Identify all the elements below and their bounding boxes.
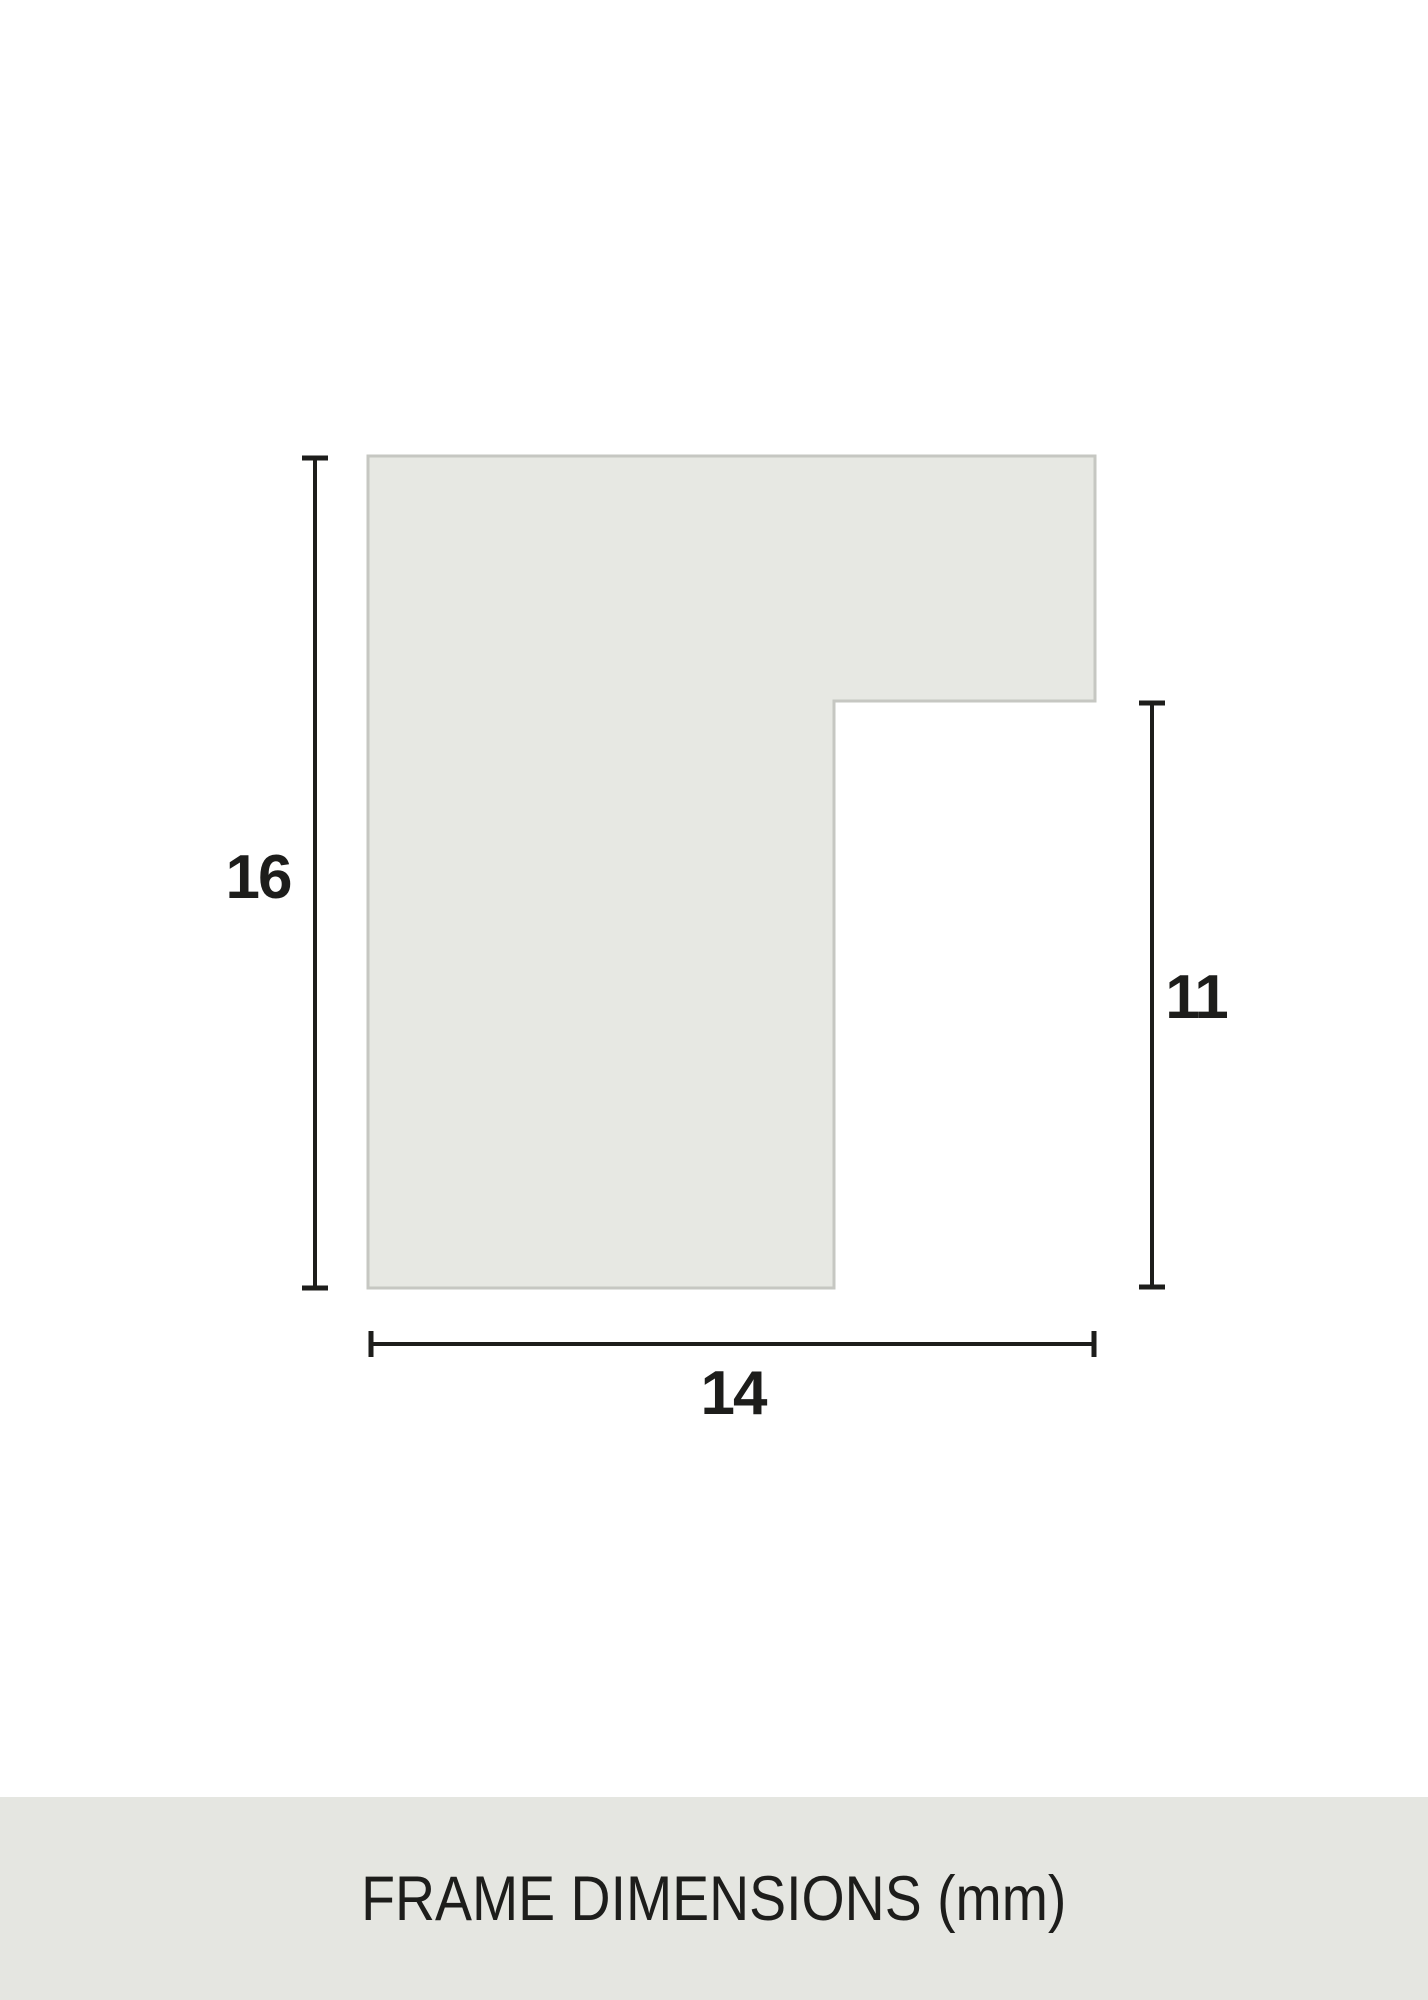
inner-height-dimension-label: 11 <box>1165 963 1227 1032</box>
width-dimension: 14 <box>371 1331 1094 1428</box>
inner-height-dimension: 11 <box>1139 703 1227 1287</box>
height-dimension-label: 16 <box>226 843 291 912</box>
footer-bar: FRAME DIMENSIONS (mm) <box>0 1797 1428 2000</box>
width-dimension-label: 14 <box>701 1359 768 1428</box>
frame-profile-shape <box>368 456 1095 1288</box>
height-dimension: 16 <box>226 458 328 1288</box>
profile-drawing-canvas: 16 11 14 <box>0 0 1428 2000</box>
frame-profile-diagram: 16 11 14 <box>0 0 1428 2000</box>
footer-title: FRAME DIMENSIONS (mm) <box>361 1863 1066 1935</box>
